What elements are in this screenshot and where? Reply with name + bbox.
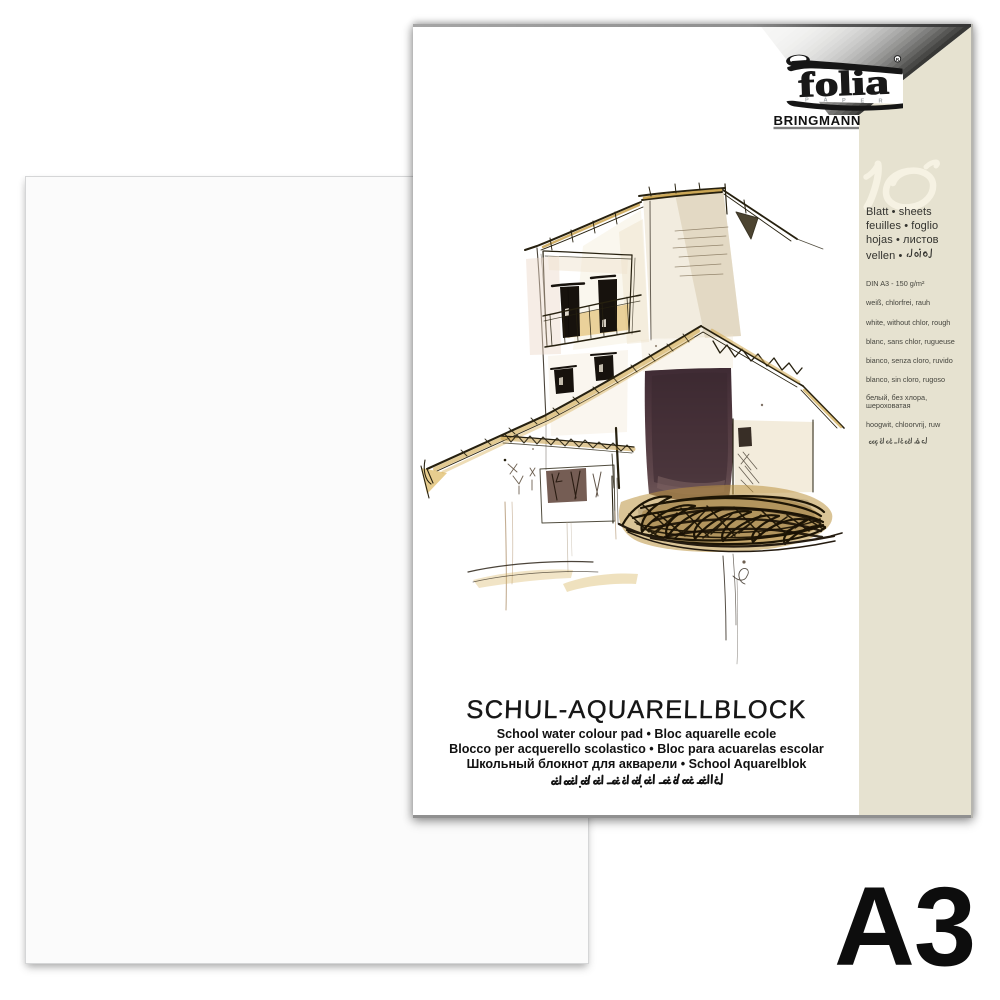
svg-text:R: R [896, 57, 900, 63]
svg-text:R: R [879, 99, 883, 105]
svg-text:E: E [861, 98, 865, 104]
